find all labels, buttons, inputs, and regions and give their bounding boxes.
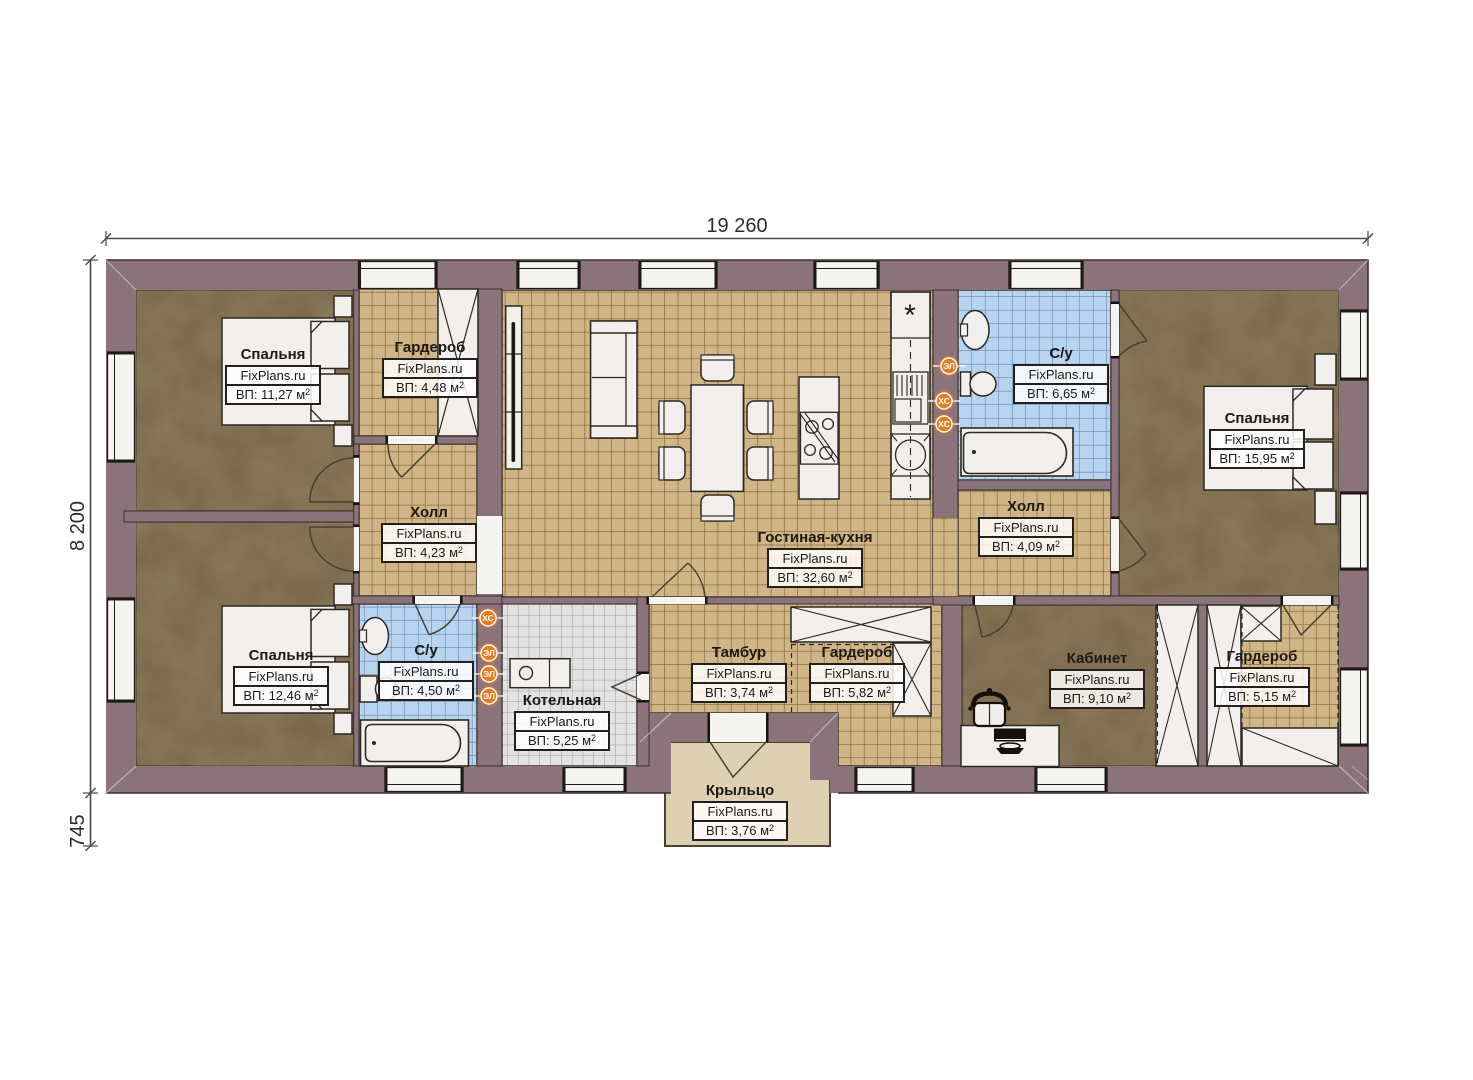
svg-text:FixPlans.ru: FixPlans.ru <box>1224 432 1289 447</box>
svg-text:ВП: 3,76 м2: ВП: 3,76 м2 <box>706 823 774 838</box>
svg-text:FixPlans.ru: FixPlans.ru <box>393 664 458 679</box>
svg-text:8 200: 8 200 <box>67 501 89 551</box>
svg-text:ХС: ХС <box>938 396 949 406</box>
svg-text:ЭЛ: ЭЛ <box>483 669 495 679</box>
svg-text:FixPlans.ru: FixPlans.ru <box>248 669 313 684</box>
svg-text:ВП: 11,27 м2: ВП: 11,27 м2 <box>236 387 310 402</box>
svg-text:ВП: 4,50 м2: ВП: 4,50 м2 <box>392 683 460 698</box>
svg-text:ЭЛ: ЭЛ <box>483 648 495 658</box>
svg-text:Гардероб: Гардероб <box>822 644 893 661</box>
svg-text:ВП: 12,46 м2: ВП: 12,46 м2 <box>243 688 318 703</box>
svg-text:FixPlans.ru: FixPlans.ru <box>396 526 461 541</box>
svg-text:Спальня: Спальня <box>249 647 314 664</box>
svg-text:FixPlans.ru: FixPlans.ru <box>824 666 889 681</box>
svg-text:ХС: ХС <box>938 419 949 429</box>
svg-text:ЭЛ: ЭЛ <box>943 361 955 371</box>
svg-text:Гардероб: Гардероб <box>1227 648 1298 665</box>
svg-text:FixPlans.ru: FixPlans.ru <box>706 666 771 681</box>
svg-text:FixPlans.ru: FixPlans.ru <box>1064 672 1129 687</box>
svg-text:Кабинет: Кабинет <box>1067 650 1128 667</box>
svg-text:FixPlans.ru: FixPlans.ru <box>993 520 1058 535</box>
svg-text:FixPlans.ru: FixPlans.ru <box>240 368 305 383</box>
svg-text:ВП: 5,15 м2: ВП: 5,15 м2 <box>1228 689 1296 704</box>
svg-text:ВП: 9,10 м2: ВП: 9,10 м2 <box>1063 691 1131 706</box>
svg-text:Котельная: Котельная <box>523 692 602 709</box>
svg-text:FixPlans.ru: FixPlans.ru <box>529 714 594 729</box>
svg-text:С/у: С/у <box>414 642 438 659</box>
svg-text:Гардероб: Гардероб <box>395 339 466 356</box>
svg-text:ВП: 15,95 м2: ВП: 15,95 м2 <box>1219 451 1294 466</box>
svg-text:ВП: 5,82 м2: ВП: 5,82 м2 <box>823 685 891 700</box>
svg-text:Холл: Холл <box>1007 498 1045 515</box>
svg-text:ВП: 5,25 м2: ВП: 5,25 м2 <box>528 733 596 748</box>
svg-text:FixPlans.ru: FixPlans.ru <box>1229 670 1294 685</box>
svg-text:Гостиная-кухня: Гостиная-кухня <box>758 529 873 546</box>
svg-text:ВП: 3,74 м2: ВП: 3,74 м2 <box>705 685 773 700</box>
svg-text:ХС: ХС <box>482 613 493 623</box>
svg-text:ВП: 32,60 м2: ВП: 32,60 м2 <box>777 570 852 585</box>
svg-text:Холл: Холл <box>410 504 448 521</box>
svg-text:С/у: С/у <box>1049 345 1073 362</box>
svg-text:ВП: 6,65 м2: ВП: 6,65 м2 <box>1027 386 1095 401</box>
svg-text:Спальня: Спальня <box>241 346 306 363</box>
svg-text:ЭЛ: ЭЛ <box>483 691 495 701</box>
svg-text:ВП: 4,23 м2: ВП: 4,23 м2 <box>395 545 463 560</box>
svg-text:FixPlans.ru: FixPlans.ru <box>1028 367 1093 382</box>
svg-text:FixPlans.ru: FixPlans.ru <box>782 551 847 566</box>
svg-text:19 260: 19 260 <box>706 215 767 237</box>
svg-text:FixPlans.ru: FixPlans.ru <box>707 804 772 819</box>
svg-text:*: * <box>904 299 916 332</box>
svg-text:FixPlans.ru: FixPlans.ru <box>397 361 462 376</box>
svg-text:ВП: 4,09 м2: ВП: 4,09 м2 <box>992 539 1060 554</box>
svg-text:Крыльцо: Крыльцо <box>706 782 774 799</box>
svg-text:Спальня: Спальня <box>1225 410 1290 427</box>
svg-text:Тамбур: Тамбур <box>712 644 766 661</box>
svg-text:745: 745 <box>67 814 89 847</box>
svg-text:ВП: 4,48 м2: ВП: 4,48 м2 <box>396 380 464 395</box>
